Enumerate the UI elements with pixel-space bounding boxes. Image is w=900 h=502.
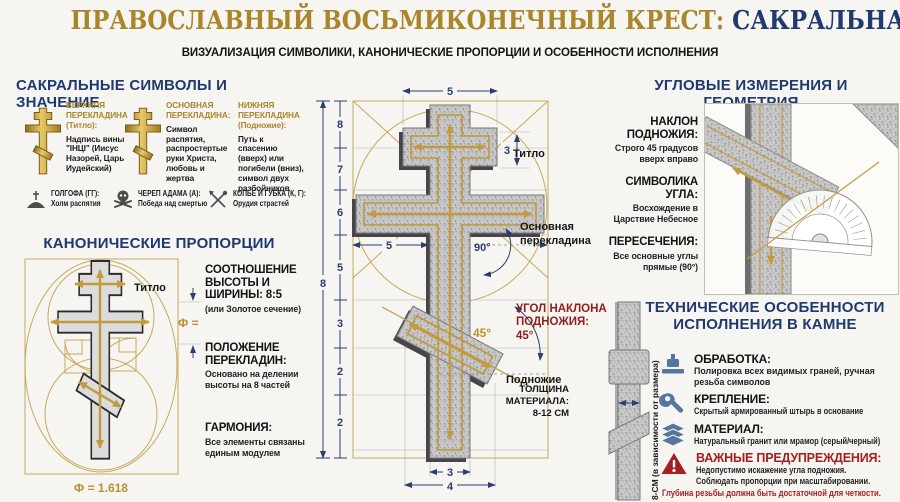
dim-segment: 2	[337, 366, 343, 378]
layers-icon	[660, 422, 686, 448]
right-angle-label: 90°	[474, 242, 491, 254]
warning-line: Соблюдать пропорции при масштабировании.	[696, 476, 870, 487]
top-beam-text: Надпись вины "ІНЦІ" (Иисус Назорей, Царь…	[66, 135, 126, 174]
glossary-term: КОПЬЕ И ГУБКА (К, Г):	[233, 189, 306, 199]
tech-item-warnings: ВАЖНЫЕ ПРЕДУПРЕЖДЕНИЯ: Недопустимо искаж…	[660, 451, 898, 487]
glossary-golgotha: ГОЛГОФА (ГГ): Холм распятия	[25, 189, 109, 209]
dim-total-height: 8	[320, 278, 326, 290]
item-title: ПОЛОЖЕНИЕ ПЕРЕКЛАДИН:	[205, 342, 305, 367]
proportion-item-ratio: СООТНОШЕНИЕ ВЫСОТЫ И ШИРИНЫ: 8:5 (или Зо…	[205, 264, 305, 315]
protractor-closeup	[705, 104, 898, 294]
phi-value: Ф = 1.618	[74, 481, 128, 495]
foot-angle-callout-line3: 45°	[516, 330, 534, 342]
cross-blueprint: 8 8 7 6 5 3 2 2 5 3 5	[310, 83, 600, 502]
main-beam-label: ОСНОВНАЯ ПЕРЕКЛАДИНА:	[166, 101, 228, 121]
golden-ratio-diagram: Титло Ф = Ф = 1.618	[17, 254, 205, 500]
glossary-skull: ЧЕРЕП АДАМА (А): Победа над смертью	[112, 189, 220, 209]
tech-item-material: МАТЕРИАЛ: Натуральный гранит или мрамор …	[660, 422, 898, 448]
item-note: Основано на делении высоты на 8 частей	[205, 369, 305, 391]
wrench-icon	[660, 392, 686, 418]
geometry-item-slope: НАКЛОН ПОДНОЖИЯ: Строго 45 градусов ввер…	[598, 116, 698, 165]
main-beam-label-line1: Основная	[520, 221, 574, 233]
glossary-term: ГОЛГОФА (ГГ):	[51, 189, 99, 199]
technical-title-line2: ИСПОЛНЕНИЯ В КАМНЕ	[673, 316, 857, 333]
golgotha-icon	[25, 189, 47, 209]
item-note: Строго 45 градусов вверх вправо	[598, 143, 698, 165]
symbols-col-main-beam: ОСНОВНАЯ ПЕРЕКЛАДИНА: Символ распятия, р…	[166, 101, 228, 184]
cross-axis-arrows	[51, 270, 149, 448]
granite-post	[751, 104, 791, 294]
glossary-term: ЧЕРЕП АДАМА (А):	[138, 189, 201, 199]
infographic-poster: ПРАВОСЛАВНЫЙ ВОСЬМИКОНЕЧНЫЙ КРЕСТ: САКРА…	[0, 0, 900, 502]
page-title-navy: САКРАЛЬНАЯ ГЕОМЕТРИЯ	[732, 6, 900, 36]
dim-top-width: 5	[447, 86, 453, 98]
spear-sponge-icon	[207, 189, 229, 209]
dim-bottom-foot: 4	[447, 481, 454, 493]
thickness-side-view: 8-СМ (в зависимости от размера)	[572, 300, 662, 502]
dim-segment: 5	[337, 262, 343, 274]
glossary-spear-sponge: КОПЬЕ И ГУБКА (К, Г): Орудия страстей	[207, 189, 319, 209]
glossary-desc: Орудия страстей	[233, 199, 289, 209]
item-title: НАКЛОН ПОДНОЖИЯ:	[598, 116, 698, 141]
thickness-side-note: 8-СМ (в зависимости от размера)	[650, 360, 660, 500]
skull-icon	[112, 189, 134, 209]
item-note: Восхождение в Царствие Небесное	[598, 203, 698, 225]
item-title: СИМВОЛИКА УГЛА:	[598, 176, 698, 201]
symbols-col-bottom-beam: НИЖНЯЯ ПЕРЕКЛАДИНА (Подножие): Путь к сп…	[238, 101, 304, 194]
tech-title: КРЕПЛЕНИЕ:	[694, 392, 893, 406]
dim-segment: 6	[337, 207, 343, 219]
geometry-item-symbolism: СИМВОЛИКА УГЛА: Восхождение в Царствие Н…	[598, 176, 698, 225]
dim-segment: 8	[337, 119, 343, 131]
protractor-panel	[704, 103, 899, 295]
warning-highlight: Глубина резьбы должна быть достаточной д…	[662, 488, 898, 498]
bottom-beam-text: Путь к спасению (вверх) или погибели (вн…	[238, 135, 304, 194]
item-note: (или Золотое сечение)	[205, 304, 305, 315]
stone-post-side	[618, 302, 640, 500]
tech-item-processing: ОБРАБОТКА: Полировка всех видимых граней…	[660, 352, 898, 388]
item-title: СООТНОШЕНИЕ ВЫСОТЫ И ШИРИНЫ: 8:5	[205, 264, 305, 302]
glossary-desc: Холм распятия	[51, 199, 101, 209]
main-beam-label-line2: перекладина	[520, 235, 592, 247]
proportion-item-harmony: ГАРМОНИЯ: Все элементы связаны единым мо…	[205, 422, 305, 459]
tech-title: МАТЕРИАЛ:	[694, 422, 900, 436]
main-beam-text: Символ распятия, распростертые руки Хрис…	[166, 125, 228, 184]
item-note: Все элементы связаны единым модулем	[205, 437, 305, 459]
phi-label: Ф =	[178, 316, 199, 330]
bottom-beam-label: НИЖНЯЯ ПЕРЕКЛАДИНА (Подножие):	[238, 101, 304, 131]
titlo-label: Титло	[134, 282, 166, 294]
page-subtitle: ВИЗУАЛИЗАЦИЯ СИМВОЛИКИ, КАНОНИЧЕСКИЕ ПРО…	[0, 47, 900, 59]
dim-segment: 7	[337, 164, 343, 176]
page-title: ПРАВОСЛАВНЫЙ ВОСЬМИКОНЕЧНЫЙ КРЕСТ: САКРА…	[0, 6, 900, 36]
dim-titlo-height: 3	[504, 145, 510, 157]
technical-section-title: ТЕХНИЧЕСКИЕ ОСОБЕННОСТИ ИСПОЛНЕНИЯ В КАМ…	[640, 300, 890, 333]
crossbar-bulge	[609, 350, 649, 384]
warning-icon	[660, 451, 688, 476]
item-title: ПЕРЕСЕЧЕНИЯ:	[598, 236, 698, 249]
proportions-section-title: КАНОНИЧЕСКИЕ ПРОПОРЦИИ	[16, 236, 302, 253]
gold-cross-icon	[124, 100, 162, 182]
tech-note: Скрытый армированный штырь в основание	[694, 406, 863, 417]
polish-tool-icon	[660, 352, 686, 376]
tech-item-mounting: КРЕПЛЕНИЕ: Скрытый армированный штырь в …	[660, 392, 898, 418]
warning-line: Недопустимо искажение угла подножия.	[696, 465, 846, 476]
phi-marker: Ф =	[178, 288, 201, 358]
dim-segment: 3	[337, 318, 343, 330]
dim-bottom-post: 3	[447, 467, 453, 479]
item-title: ГАРМОНИЯ:	[205, 422, 305, 435]
titlo-label: Титло	[513, 148, 545, 160]
tech-note: Натуральный гранит или мрамор (серый/чер…	[694, 436, 880, 447]
gold-cross-icon	[24, 100, 62, 182]
thickness-label: ТОЛЩИНА МАТЕРИАЛА: 8-12 СМ	[497, 384, 569, 420]
vertical-dimension-chain: 8 8 7 6 5 3 2 2	[316, 101, 347, 458]
item-note: Все основные углы прямые (90°)	[598, 251, 698, 273]
foot-angle-gold-label: 45°	[473, 326, 491, 340]
symbols-col-top-beam: ВЕРХНЯЯ ПЕРЕКЛАДИНА (Титло): Надпись вин…	[66, 101, 126, 174]
page-title-gold: ПРАВОСЛАВНЫЙ ВОСЬМИКОНЕЧНЫЙ КРЕСТ:	[71, 6, 733, 36]
dim-segment: 2	[337, 417, 343, 429]
proportion-item-position: ПОЛОЖЕНИЕ ПЕРЕКЛАДИН: Основано на делени…	[205, 342, 305, 391]
glossary-desc: Победа над смертью	[138, 199, 207, 209]
technical-title-line1: ТЕХНИЧЕСКИЕ ОСОБЕННОСТИ	[645, 299, 884, 316]
tech-note: Полировка всех видимых граней, ручная ре…	[694, 366, 892, 388]
warnings-title: ВАЖНЫЕ ПРЕДУПРЕЖДЕНИЯ:	[696, 451, 900, 465]
top-beam-label: ВЕРХНЯЯ ПЕРЕКЛАДИНА (Титло):	[66, 101, 126, 131]
tech-title: ОБРАБОТКА:	[694, 352, 892, 366]
geometry-item-intersections: ПЕРЕСЕЧЕНИЯ: Все основные углы прямые (9…	[598, 236, 698, 273]
dim-half-width: 5	[386, 240, 392, 252]
